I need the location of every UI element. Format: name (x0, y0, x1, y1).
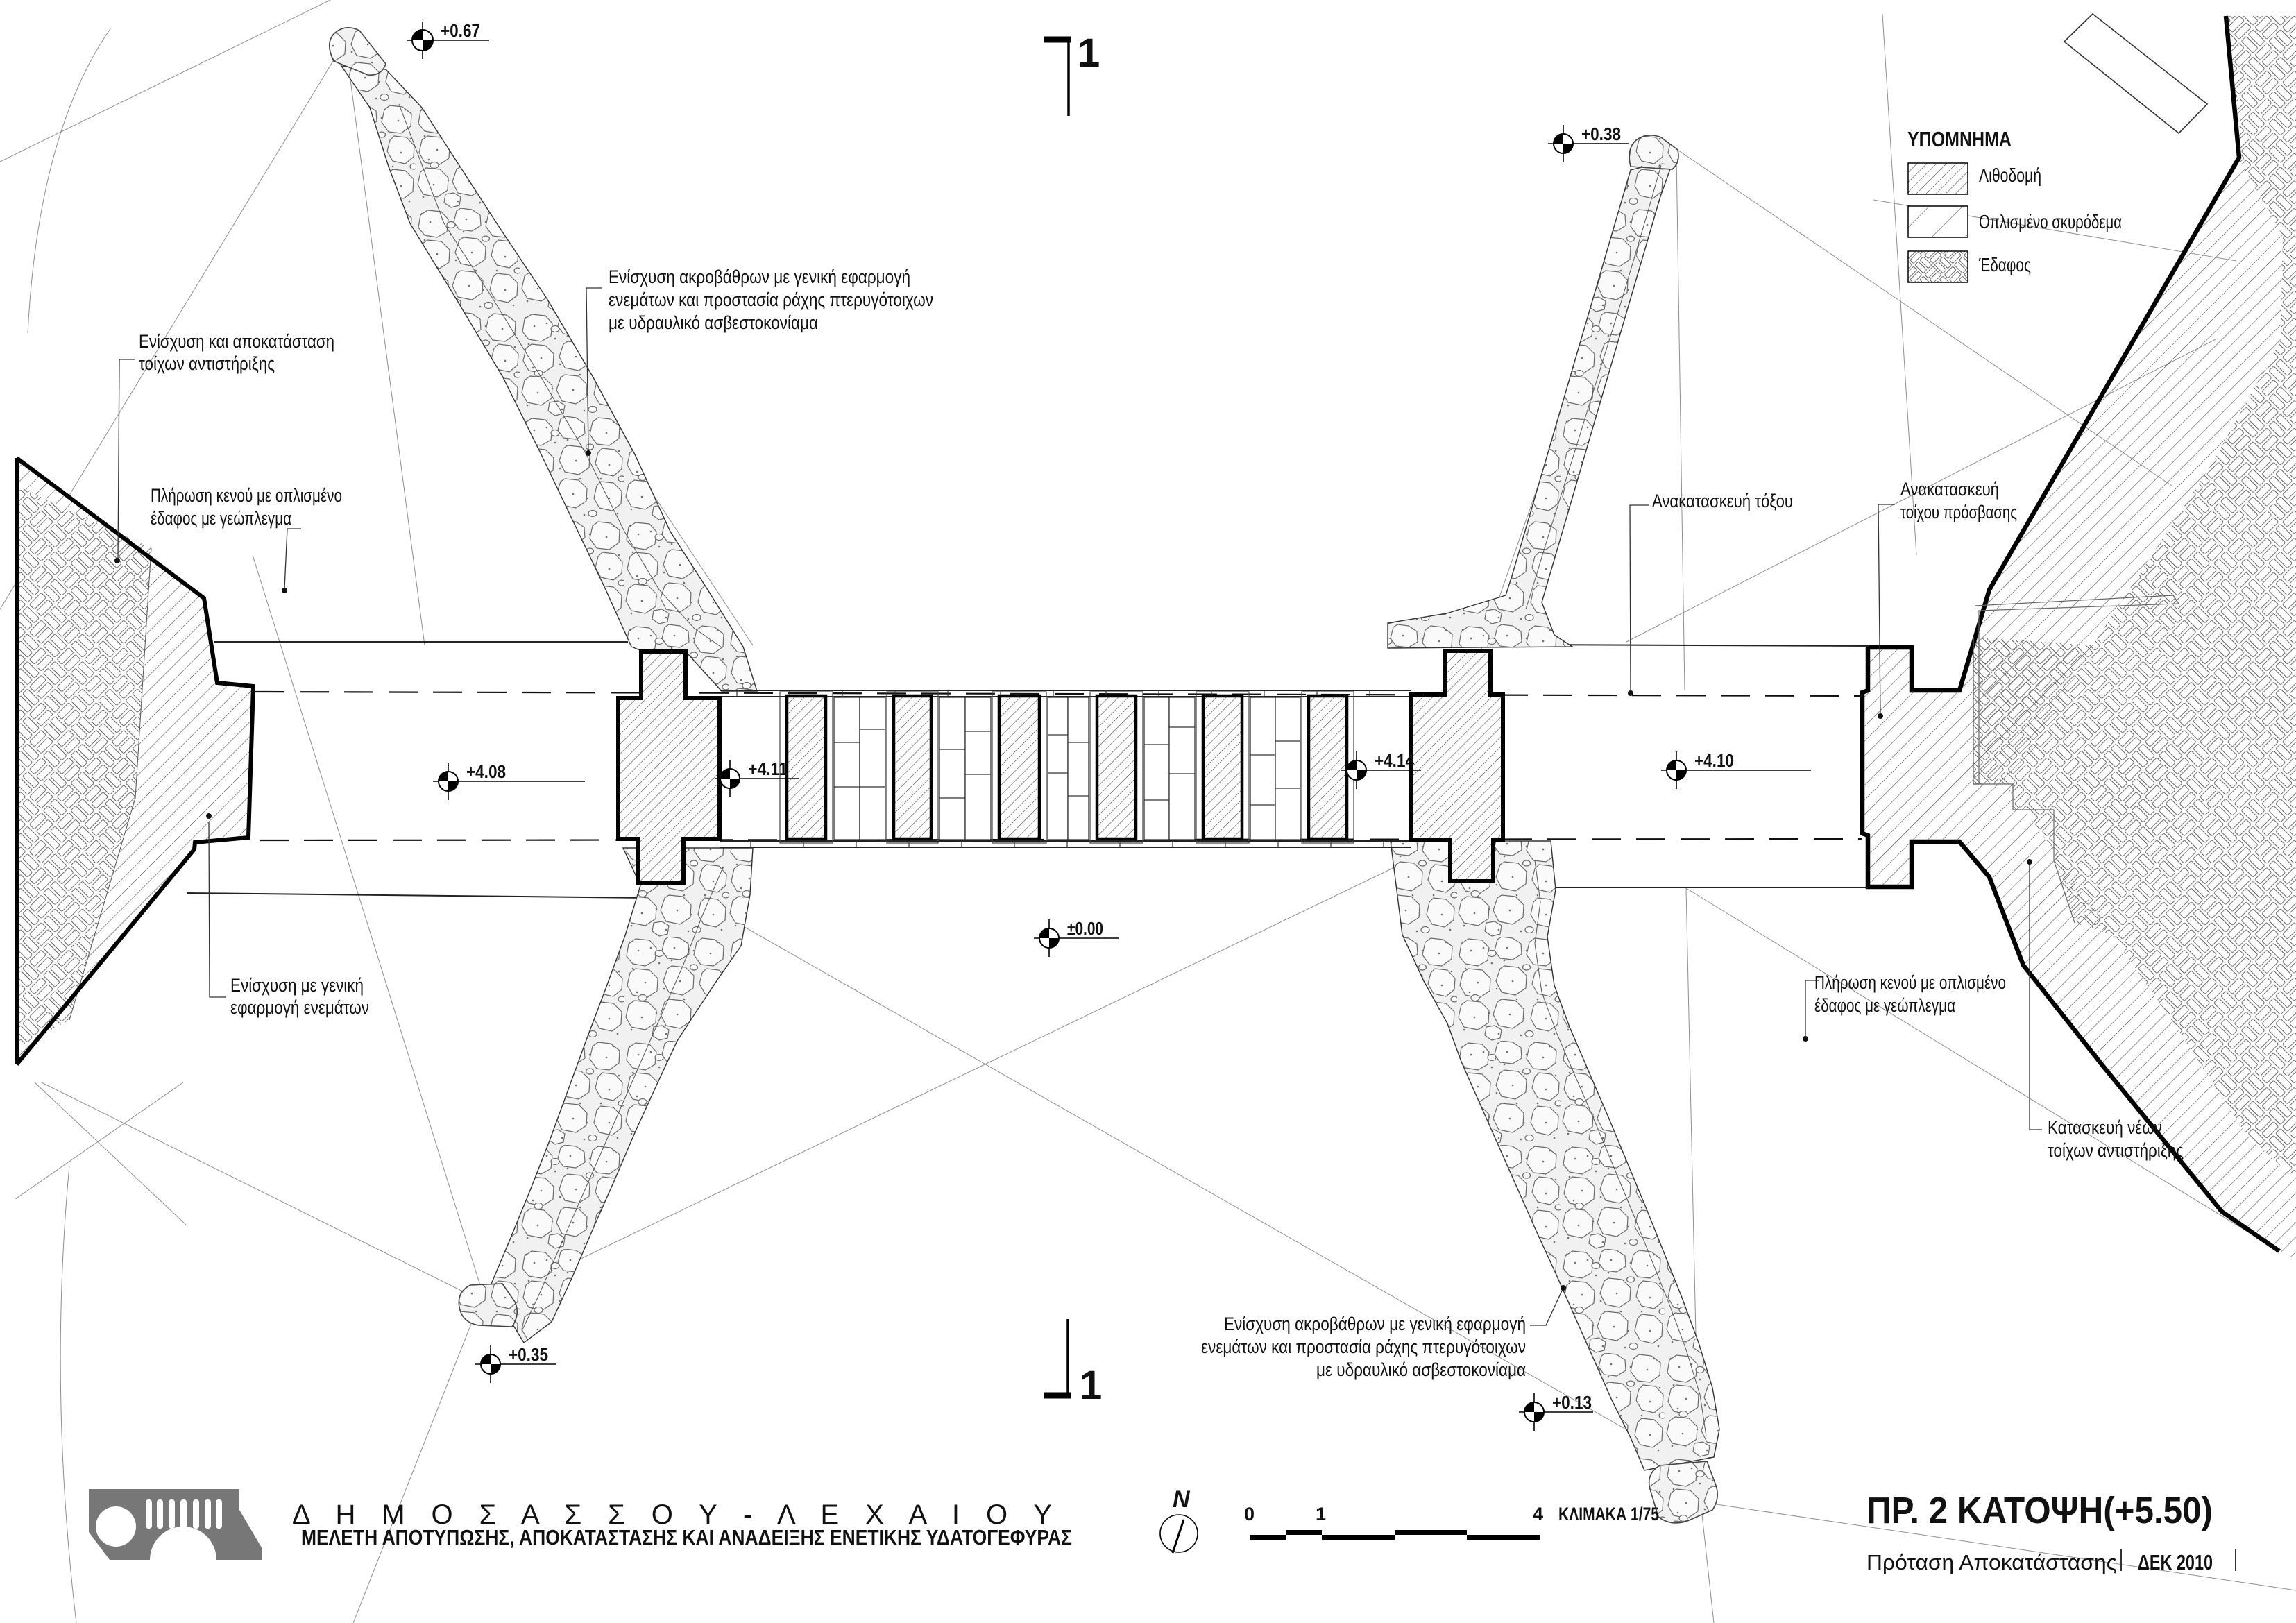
svg-text:Ενίσχυση ακροβάθρων με γενική: Ενίσχυση ακροβάθρων με γενική εφαρμογή (609, 266, 910, 287)
svg-text:N: N (1173, 1486, 1191, 1513)
svg-text:ενεμάτων και προστασία ράχης π: ενεμάτων και προστασία ράχης πτερυγότοιχ… (1201, 1336, 1526, 1357)
svg-text:με υδραυλικό ασβεστοκονίαμα: με υδραυλικό ασβεστοκονίαμα (1316, 1359, 1526, 1380)
svg-text:Κατασκευή νέων: Κατασκευή νέων (2048, 1117, 2162, 1138)
svg-text:+0.35: +0.35 (509, 1344, 548, 1365)
svg-text:ΚΛΙΜΑΚΑ 1/75: ΚΛΙΜΑΚΑ 1/75 (1558, 1504, 1659, 1524)
svg-text:τοίχων αντιστήριξης: τοίχων αντιστήριξης (2048, 1140, 2184, 1161)
svg-text:Ανακατασκευή: Ανακατασκευή (1900, 479, 1999, 500)
svg-text:Ενίσχυση ακροβάθρων με γενική: Ενίσχυση ακροβάθρων με γενική εφαρμογή (1224, 1314, 1526, 1334)
svg-text:4: 4 (1533, 1504, 1543, 1524)
svg-text:±0.00: ±0.00 (1067, 918, 1103, 939)
svg-text:ενεμάτων και προστασία ράχης π: ενεμάτων και προστασία ράχης πτερυγότοιχ… (609, 289, 933, 310)
svg-text:+4.08: +4.08 (466, 761, 506, 782)
svg-text:Ανακατασκευή τόξου: Ανακατασκευή τόξου (1652, 491, 1793, 511)
svg-text:με υδραυλικό ασβεστοκονίαμα: με υδραυλικό ασβεστοκονίαμα (609, 312, 818, 333)
svg-text:Ενίσχυση με γενική: Ενίσχυση με γενική (230, 975, 364, 996)
svg-text:Πρόταση Αποκατάστασης: Πρόταση Αποκατάστασης (1866, 1550, 2117, 1574)
svg-text:+4.11: +4.11 (748, 758, 788, 779)
svg-text:έδαφος με γεώπλεγμα: έδαφος με γεώπλεγμα (151, 508, 291, 529)
svg-text:τοίχου πρόσβασης: τοίχου πρόσβασης (1900, 502, 2017, 522)
svg-text:Ενίσχυση και αποκατάσταση: Ενίσχυση και αποκατάσταση (139, 331, 334, 352)
svg-text:ΥΠΟΜΝΗΜΑ: ΥΠΟΜΝΗΜΑ (1907, 127, 2012, 151)
svg-text:ΠΡ. 2 ΚΑΤΟΨΗ(+5.50): ΠΡ. 2 ΚΑΤΟΨΗ(+5.50) (1866, 1490, 2213, 1531)
svg-text:εφαρμογή ενεμάτων: εφαρμογή ενεμάτων (230, 997, 369, 1018)
svg-text:1: 1 (1080, 1363, 1102, 1408)
svg-text:1: 1 (1078, 31, 1100, 76)
svg-text:τοίχων αντιστήριξης: τοίχων αντιστήριξης (139, 353, 275, 374)
svg-text:+4.10: +4.10 (1694, 750, 1734, 771)
svg-text:+0.38: +0.38 (1581, 124, 1621, 144)
svg-text:+4.14: +4.14 (1375, 750, 1414, 771)
svg-text:1: 1 (1316, 1504, 1326, 1524)
svg-text:0: 0 (1244, 1504, 1255, 1524)
svg-text:Πλήρωση κενού με οπλισμένο: Πλήρωση κενού με οπλισμένο (1814, 972, 2006, 993)
svg-text:έδαφος με γεώπλεγμα: έδαφος με γεώπλεγμα (1814, 995, 1955, 1016)
svg-text:Έδαφος: Έδαφος (1978, 254, 2031, 275)
svg-text:Λιθοδομή: Λιθοδομή (1979, 164, 2041, 186)
svg-text:Πλήρωση κενού με οπλισμένο: Πλήρωση κενού με οπλισμένο (151, 485, 342, 506)
svg-text:ΜΕΛΕΤΗ ΑΠΟΤΥΠΩΣΗΣ, ΑΠΟΚΑΤΑΣΤΑΣ: ΜΕΛΕΤΗ ΑΠΟΤΥΠΩΣΗΣ, ΑΠΟΚΑΤΑΣΤΑΣΗΣ ΚΑΙ ΑΝΑ… (301, 1525, 1072, 1549)
svg-text:Οπλισμένο σκυρόδεμα: Οπλισμένο σκυρόδεμα (1979, 211, 2122, 232)
svg-text:+0.67: +0.67 (441, 20, 480, 41)
svg-text:+0.13: +0.13 (1552, 1392, 1592, 1413)
svg-text:ΔΕΚ 2010: ΔΕΚ 2010 (2138, 1550, 2213, 1574)
